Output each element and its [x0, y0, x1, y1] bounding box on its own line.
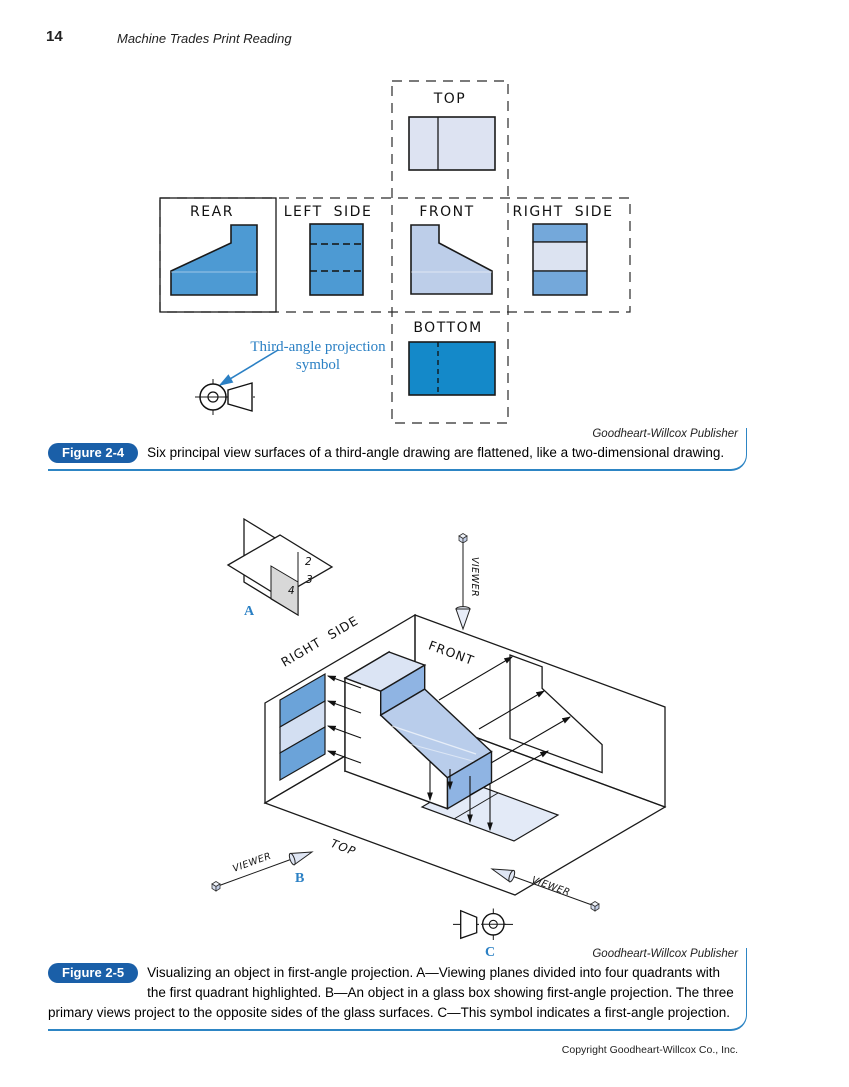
figure-2-5-drawing: 2 3 4 A RIGHT SIDE FRONT TOP: [140, 505, 760, 985]
publisher-credit: Goodheart-Willcox Publisher: [48, 428, 738, 440]
floor-label-top: TOP: [329, 836, 358, 858]
viewer-arrow-bottom-left: VIEWER B: [212, 846, 314, 891]
label-b: B: [295, 871, 304, 886]
running-title: Machine Trades Print Reading: [117, 31, 292, 46]
rear-view-shape: [171, 225, 257, 295]
wall-label-right-side: RIGHT SIDE: [278, 613, 361, 670]
figure-2-4-caption: Six principal view surfaces of a third-a…: [147, 445, 724, 460]
top-view-label: TOP: [433, 91, 467, 107]
top-view: TOP: [409, 91, 495, 170]
wall-label-front: FRONT: [427, 638, 477, 669]
viewer-top-cone: [456, 609, 470, 629]
front-view: FRONT: [411, 204, 492, 294]
symbol-cone: [228, 383, 252, 411]
left-side-view-label: LEFT SIDE: [284, 204, 373, 220]
front-view-shape: [411, 225, 492, 294]
right-side-view: RIGHT SIDE: [513, 204, 614, 295]
textbook-page: 14 Machine Trades Print Reading TOP REAR…: [0, 0, 849, 1087]
right-side-band-top: [533, 224, 587, 242]
quadrant-4-label: 4: [288, 585, 295, 597]
bottom-view: BOTTOM: [409, 320, 495, 395]
annotation-line1: Third-angle projection: [250, 339, 386, 355]
figure-2-4-caption-block: Goodheart-Willcox Publisher Figure 2-4Si…: [48, 428, 747, 471]
bottom-view-label: BOTTOM: [413, 320, 482, 336]
page-number: 14: [46, 28, 63, 45]
annotation-line2: symbol: [296, 357, 340, 373]
figure-2-4-badge: Figure 2-4: [48, 443, 138, 463]
right-side-view-label: RIGHT SIDE: [513, 204, 614, 220]
quadrant-2-label: 2: [305, 556, 312, 568]
top-view-shape: [409, 117, 495, 170]
rear-view: REAR: [171, 204, 257, 295]
bottom-view-shape: [409, 342, 495, 395]
figure-2-5-badge: Figure 2-5: [48, 963, 138, 983]
right-side-band-middle: [533, 242, 587, 271]
front-view-label: FRONT: [419, 204, 474, 220]
front-arrow: [439, 657, 512, 700]
viewer-arrow-top: VIEWER: [456, 534, 480, 630]
quadrant-planes-diagram: 2 3 4 A: [228, 519, 332, 619]
rear-view-label: REAR: [190, 204, 234, 220]
third-angle-annotation: Third-angle projection symbol: [220, 339, 386, 385]
publisher-credit: Goodheart-Willcox Publisher: [48, 948, 738, 960]
figure-2-5-caption-block: Goodheart-Willcox Publisher Figure 2-5Vi…: [48, 948, 747, 1031]
viewer-arrow-bottom-right: VIEWER: [490, 863, 599, 911]
left-side-view-shape: [310, 224, 363, 295]
viewer-br-label: VIEWER: [530, 875, 572, 899]
viewer-bl-cone: [288, 846, 314, 865]
right-side-band-bottom: [533, 271, 587, 295]
viewer-bl-label: VIEWER: [231, 851, 273, 875]
front-arrow: [479, 691, 544, 729]
label-a: A: [244, 604, 255, 619]
third-angle-projection-symbol: [195, 379, 258, 415]
quadrant-3-label: 3: [306, 574, 313, 586]
viewer-br-cone: [490, 863, 516, 882]
left-side-view: LEFT SIDE: [284, 204, 373, 295]
symbol-cone: [461, 911, 477, 939]
figure-2-5-caption: Visualizing an object in first-angle pro…: [48, 965, 734, 1020]
viewer-top-label: VIEWER: [469, 557, 480, 597]
figure-2-4-drawing: TOP REAR LEFT SIDE FRONT RIGHT SIDE: [140, 70, 660, 435]
annotation-arrow: [220, 350, 278, 385]
copyright-line: Copyright Goodheart-Willcox Co., Inc.: [400, 1044, 738, 1056]
